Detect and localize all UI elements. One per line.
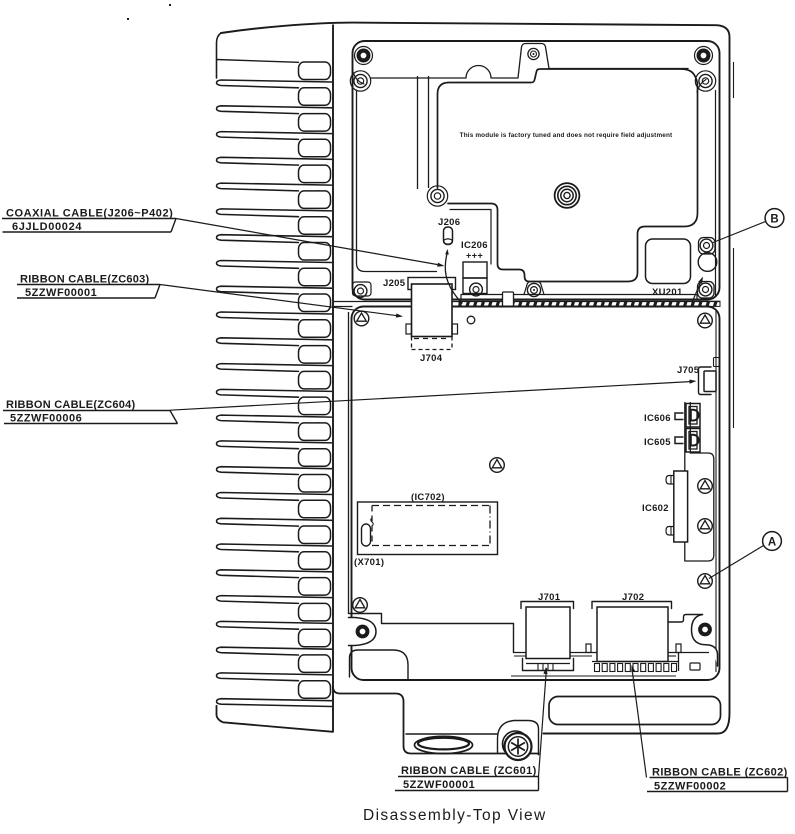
svg-text:XU201: XU201 [652, 287, 683, 298]
svg-text:(IC702): (IC702) [411, 492, 445, 503]
svg-text:J704: J704 [420, 353, 443, 364]
svg-text:+++: +++ [466, 251, 483, 261]
svg-text:5ZZWF00002: 5ZZWF00002 [654, 781, 726, 793]
svg-text:IC206: IC206 [461, 240, 488, 251]
svg-text:(X701): (X701) [354, 557, 384, 568]
svg-text:5ZZWF00006: 5ZZWF00006 [10, 413, 82, 425]
svg-text:A: A [768, 536, 776, 548]
svg-text:RIBBON CABLE (ZC602): RIBBON CABLE (ZC602) [652, 767, 788, 779]
svg-text:IC605: IC605 [644, 437, 671, 448]
svg-text:COAXIAL CABLE(J206~P402): COAXIAL CABLE(J206~P402) [6, 208, 173, 220]
svg-text:IC606: IC606 [644, 413, 671, 424]
svg-text:RIBBON CABLE (ZC601): RIBBON CABLE (ZC601) [401, 765, 537, 777]
svg-text:J205: J205 [383, 278, 406, 289]
svg-text:5ZZWF00001: 5ZZWF00001 [25, 287, 97, 299]
svg-text:6JJLD00024: 6JJLD00024 [12, 221, 82, 233]
svg-text:B: B [770, 213, 778, 225]
svg-text:This module is factory tuned a: This module is factory tuned and does no… [460, 132, 673, 139]
svg-text:5ZZWF00001: 5ZZWF00001 [403, 779, 475, 791]
svg-text:J705: J705 [677, 365, 700, 376]
svg-text:RIBBON CABLE(ZC603): RIBBON CABLE(ZC603) [20, 274, 150, 286]
svg-text:RIBBON CABLE(ZC604): RIBBON CABLE(ZC604) [6, 399, 136, 411]
svg-text:Disassembly-Top View: Disassembly-Top View [363, 807, 547, 824]
svg-text:IC602: IC602 [642, 503, 669, 514]
